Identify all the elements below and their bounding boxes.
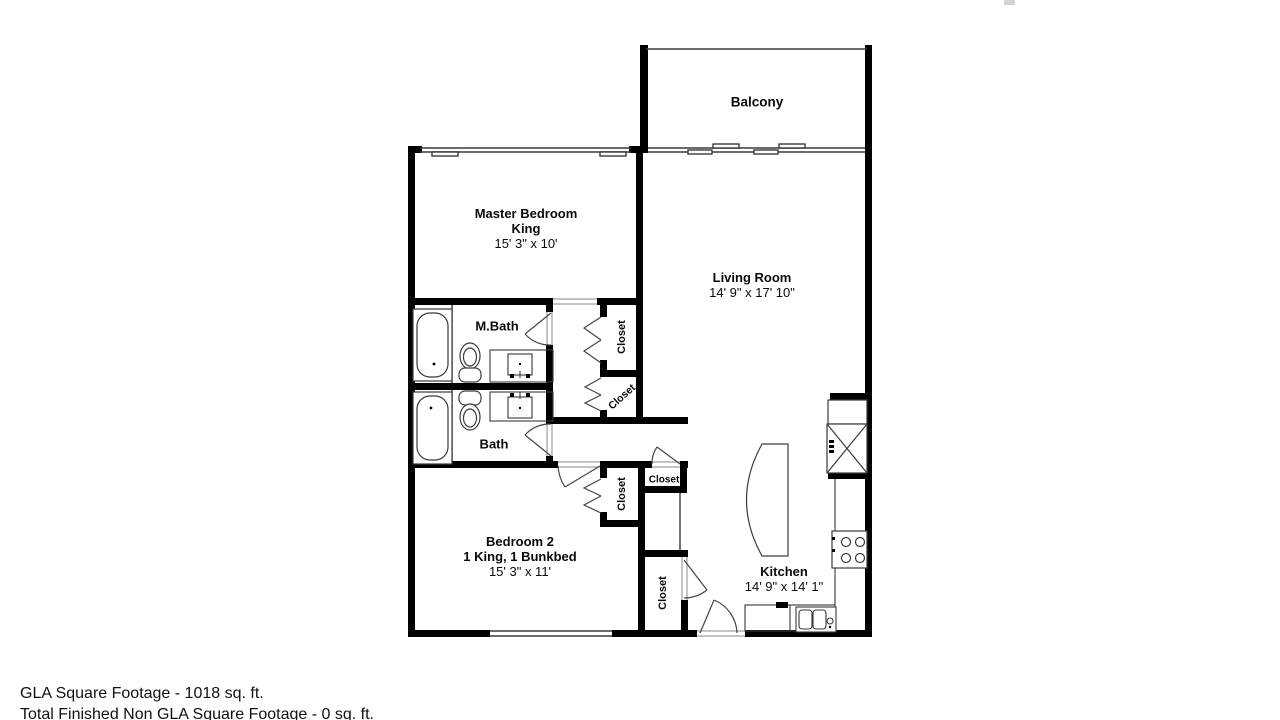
- living-room-name: Living Room: [709, 270, 795, 285]
- stove: [832, 531, 867, 568]
- kitchen-dims: 14' 9" x 14' 1": [745, 579, 824, 594]
- hall-closet-upper-label: Closet: [616, 320, 628, 354]
- floor-plan-drawing: [0, 0, 1280, 720]
- living-room-dims: 14' 9" x 17' 10": [709, 285, 795, 300]
- non-gla-square-footage-text: Total Finished Non GLA Square Footage - …: [20, 706, 374, 720]
- balcony-label: Balcony: [731, 95, 784, 110]
- hall-small-closet-door-swing: [652, 447, 680, 464]
- floor-plan-page: Balcony Master Bedroom King 15' 3" x 10'…: [0, 0, 1280, 720]
- refrigerator: [827, 400, 867, 473]
- kitchen-sink: [796, 607, 836, 632]
- gla-square-footage-text: GLA Square Footage - 1018 sq. ft.: [20, 685, 264, 703]
- bedroom2-closet-label: Closet: [616, 477, 628, 511]
- bath-toilet: [459, 391, 481, 430]
- hall-closet-upper-bifold: [584, 317, 601, 363]
- master-bath-vanity: [490, 350, 553, 382]
- bedroom2-label: Bedroom 2 1 King, 1 Bunkbed 15' 3" x 11': [463, 534, 576, 579]
- kitchen-name: Kitchen: [745, 564, 824, 579]
- master-bedroom-dims: 15' 3" x 10': [475, 236, 578, 251]
- master-bath-toilet: [459, 343, 481, 382]
- master-bath-label: M.Bath: [475, 319, 518, 334]
- bedroom2-name: Bedroom 2: [463, 534, 576, 549]
- door-swings: [525, 313, 737, 633]
- master-bedroom-name: Master Bedroom: [475, 206, 578, 221]
- top-edge-artifact: [1004, 0, 1015, 5]
- master-bath-tub: [413, 309, 452, 381]
- living-room-label: Living Room 14' 9" x 17' 10": [709, 270, 795, 300]
- entry-closet-label: Closet: [657, 576, 669, 610]
- bedroom2-dims: 15' 3" x 11': [463, 564, 576, 579]
- bath-label: Bath: [480, 437, 509, 452]
- kitchen-island: [747, 444, 789, 556]
- hall-closet-lower-bifold: [585, 378, 601, 411]
- entry-door-swing: [700, 600, 737, 633]
- master-bedroom-label: Master Bedroom King 15' 3" x 10': [475, 206, 578, 251]
- kitchen-label: Kitchen 14' 9" x 14' 1": [745, 564, 824, 594]
- bedroom2-door-swing: [558, 466, 600, 487]
- bath-vanity: [490, 392, 553, 421]
- bath-tub: [413, 392, 452, 464]
- hall-closet-small-label: Closet: [649, 475, 680, 486]
- dishwasher-mark: [776, 602, 788, 608]
- bedroom2-closet-bifold: [584, 479, 601, 513]
- bedroom2-bed: 1 King, 1 Bunkbed: [463, 549, 576, 564]
- master-bedroom-bed: King: [475, 221, 578, 236]
